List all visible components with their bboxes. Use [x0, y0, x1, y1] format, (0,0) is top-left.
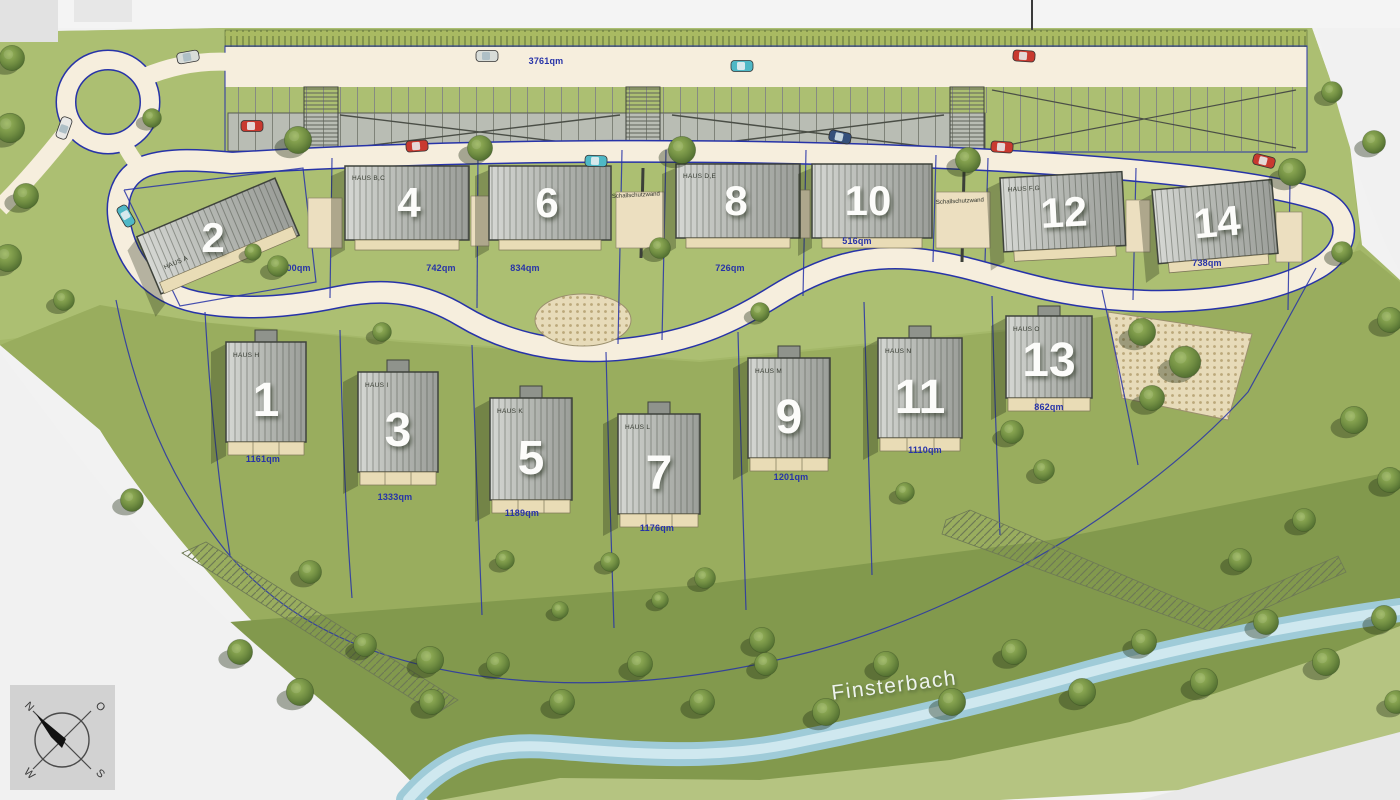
house-13-number: 13 [1022, 334, 1075, 387]
house-5[interactable]: HAUS K 5 [475, 386, 572, 522]
car-icon [476, 51, 498, 62]
parking-stalls [228, 87, 988, 113]
house-10-number: 10 [845, 177, 892, 224]
house-4-label: HAUS B,C [352, 175, 385, 182]
house-9-label: HAUS M [755, 368, 782, 375]
house-1[interactable]: HAUS H 1 [211, 330, 306, 464]
house-6-number: 6 [535, 179, 558, 226]
site-plan-canvas: HAUS A 2 HAUS B,C 4 6 HAUS D,E 8 10 [0, 0, 1400, 800]
house-3-number: 3 [385, 404, 412, 457]
area-738: 738qm [1192, 258, 1222, 268]
parking-area-label: 3761qm [529, 56, 564, 66]
house-7[interactable]: HAUS L 7 [603, 402, 700, 536]
house-11[interactable]: HAUS N 11 [863, 326, 962, 460]
house-9[interactable]: HAUS M 9 [733, 346, 830, 480]
hedge-band [225, 30, 1307, 47]
house-11-number: 11 [895, 371, 946, 424]
area-1161: 1161qm [246, 454, 280, 464]
house-5-number: 5 [518, 432, 545, 485]
car-icon [731, 61, 753, 72]
house-13-label: HAUS O [1013, 326, 1040, 333]
parking-aisle [225, 47, 1307, 87]
site-plan: HAUS A 2 HAUS B,C 4 6 HAUS D,E 8 10 [0, 0, 1400, 800]
area-726: 726qm [715, 263, 745, 273]
area-1333: 1333qm [378, 492, 413, 502]
area-862: 862qm [1034, 402, 1064, 412]
area-834: 834qm [510, 263, 540, 273]
house-2-number: 2 [201, 214, 224, 261]
house-1-number: 1 [253, 374, 280, 427]
house-9-number: 9 [776, 391, 803, 444]
house-7-label: HAUS L [625, 424, 650, 431]
compass-rose-icon: N O W S [10, 685, 115, 790]
area-1110: 1110qm [908, 445, 942, 455]
house-3-label: HAUS I [365, 382, 388, 389]
house-5-label: HAUS K [497, 408, 523, 415]
car-icon [585, 155, 607, 167]
house-4-number: 4 [397, 179, 421, 226]
margin-top [0, 0, 1400, 28]
area-1189: 1189qm [505, 508, 539, 518]
area-742: 742qm [426, 263, 456, 273]
car-icon [991, 141, 1014, 154]
neighbor-block-2 [74, 0, 132, 22]
area-516: 516qm [842, 236, 872, 246]
plaza-center [535, 294, 631, 346]
house-8-number: 8 [724, 177, 747, 224]
house-14-number: 14 [1192, 196, 1243, 247]
area-1176: 1176qm [640, 523, 674, 533]
house-8-label: HAUS D,E [683, 173, 716, 180]
house-1-label: HAUS H [233, 352, 259, 359]
neighbor-block-1 [0, 0, 58, 42]
car-icon [1013, 50, 1036, 63]
car-icon [406, 140, 429, 153]
house-12-number: 12 [1039, 188, 1088, 237]
house-11-label: HAUS N [885, 348, 911, 355]
area-1201: 1201qm [774, 472, 809, 482]
house-7-number: 7 [646, 447, 673, 500]
car-icon [241, 121, 263, 132]
house-3[interactable]: HAUS I 3 [343, 360, 438, 494]
